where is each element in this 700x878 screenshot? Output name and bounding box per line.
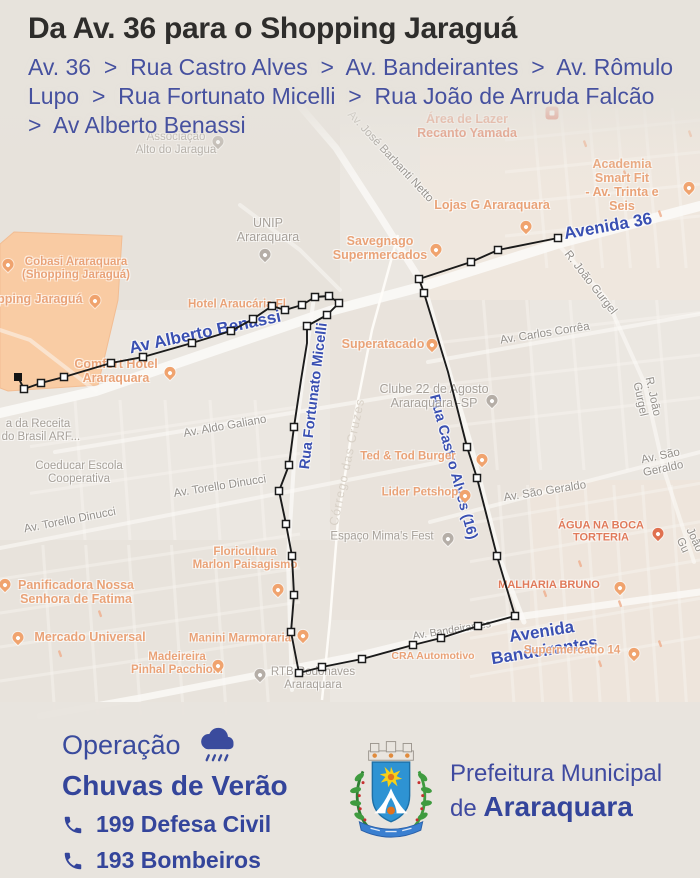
city-line-prefix: de [450, 795, 483, 822]
minor-road [210, 400, 220, 540]
minor-road [0, 636, 300, 681]
road-label: Av. Torello Dinucci [173, 473, 267, 500]
poi-pin [612, 580, 628, 596]
poi-label: Superatacado [342, 337, 425, 351]
poi-pin [626, 646, 642, 662]
route-waypoint [555, 235, 562, 242]
poi-label: Ted & Tod Burger [360, 451, 455, 464]
poi-pin [162, 365, 178, 381]
minor-road [214, 545, 226, 715]
stream-corrego-das-cruzes [322, 235, 398, 700]
minor-road [470, 598, 700, 638]
route-road-label: Rua Castro Alves (16) [426, 393, 480, 541]
route-path [18, 238, 558, 673]
traffic-arrow [658, 640, 663, 647]
route-waypoint [438, 635, 445, 642]
minor-road [30, 453, 300, 493]
traffic-arrow [578, 560, 583, 567]
road [430, 452, 700, 522]
minor-road [86, 545, 98, 715]
minor-road [30, 407, 300, 447]
minor-road [585, 485, 601, 715]
route-waypoint [283, 521, 290, 528]
poi-label: Lojas G Araraquara [434, 198, 550, 212]
poi-label: Hotel Araucária Fl [188, 299, 286, 312]
minor-road [657, 300, 671, 470]
road-label: Av. Torello Dinucci [23, 506, 117, 536]
minor-road [440, 313, 700, 343]
route-waypoint [474, 475, 481, 482]
minor-road [470, 522, 700, 562]
minor-road [171, 545, 183, 715]
route-waypoint [495, 247, 502, 254]
operation-name: Chuvas de Verão [62, 770, 288, 802]
route-waypoint [38, 380, 45, 387]
minor-road [165, 400, 175, 540]
poi-pin [270, 582, 286, 598]
route-waypoint [21, 386, 28, 393]
operation-block: Operação Chuvas de Verão 199 [62, 726, 288, 874]
poi-label: CRA Automotivo [391, 651, 474, 663]
araraquara-coat-of-arms [348, 736, 434, 846]
city-hall-logo: Prefeitura Municipal de Araraquara [348, 736, 662, 846]
poi-label: Shopping Jaraguá [0, 292, 83, 306]
poi-pin [428, 242, 444, 258]
route-waypoint [421, 290, 428, 297]
city-line: de Araraquara [450, 791, 662, 823]
route-waypoint [291, 424, 298, 431]
minor-road [528, 485, 544, 715]
route-waypoint [140, 354, 147, 361]
route-waypoint [282, 307, 289, 314]
route-waypoint [304, 323, 311, 330]
route-waypoint [276, 488, 283, 495]
poi-label: RTB Rodonaves Araraquara [271, 666, 355, 692]
road [55, 390, 430, 452]
route-waypoint [228, 328, 235, 335]
traffic-arrow [543, 200, 548, 207]
minor-road [440, 398, 700, 428]
route-road-label: Avenida 36 [562, 209, 653, 243]
poi-label: Mercado Universal [34, 630, 145, 644]
poi-pin [474, 452, 490, 468]
poi-label: ÁGUA NA BOCA TORTERIA [558, 520, 644, 545]
poi-label: Supermercado 14 [524, 645, 621, 658]
poi-pin [518, 219, 534, 235]
operation-label: Operação [62, 730, 181, 761]
phone-firefighters: 193 Bombeiros [96, 847, 261, 874]
rain-cloud-icon [195, 726, 239, 764]
city-name: Araraquara [483, 791, 632, 822]
traffic-arrow [658, 210, 663, 217]
road-label: Av. Aldo Galiano [183, 413, 268, 440]
route-waypoint [319, 664, 326, 671]
minor-road [255, 400, 265, 540]
minor-road [643, 485, 659, 715]
road-label: Av. São Geraldo [639, 446, 684, 480]
route-road-label: Av Alberto Benassi [127, 307, 282, 358]
minor-road [614, 485, 630, 715]
poi-pin [650, 526, 666, 542]
route-waypoint [288, 629, 295, 636]
route-end-marker [14, 373, 22, 381]
traffic-arrow [618, 600, 623, 607]
minor-road [505, 216, 700, 236]
traffic-arrow [598, 660, 603, 667]
route-waypoint [108, 360, 115, 367]
poi-pin [87, 293, 103, 309]
poi-label: Clube 22 de Agosto Araraquara -SP [379, 382, 488, 410]
poi-label: Espaço Mima's Fest [330, 531, 433, 544]
minor-road [440, 355, 700, 385]
minor-road [120, 400, 130, 540]
route-waypoint [359, 656, 366, 663]
poi-pin [257, 247, 273, 263]
route-waypoint [416, 276, 423, 283]
minor-road [0, 602, 300, 647]
poi-pin [0, 257, 16, 273]
traffic-arrow [58, 650, 63, 657]
shopping-jaragua-area [0, 232, 122, 391]
road [0, 462, 440, 548]
road-label: R. João Gu [671, 521, 700, 560]
route-waypoint [286, 462, 293, 469]
route-waypoint [475, 623, 482, 630]
poi-label: Floricultura Marlon Paisagismo [193, 546, 298, 572]
minor-road [0, 534, 300, 579]
road-label: Av. São Geraldo [503, 479, 587, 505]
road-label: R. João Gurgel [561, 249, 619, 318]
minor-road [671, 485, 687, 715]
route-directions-line: > Av Alberto Benassi [28, 111, 688, 140]
route-waypoint [291, 592, 298, 599]
poi-label: a da Receita l do Brasil ARF... [0, 418, 80, 444]
poi-label: Manini Marmoraria [189, 633, 291, 646]
route-waypoint [324, 312, 331, 319]
poi-label: Cobasi Araraquara (Shopping Jaraguá) [22, 256, 130, 282]
prefeitura-line: Prefeitura Municipal [450, 760, 662, 788]
minor-road [129, 545, 141, 715]
poi-pin [252, 667, 268, 683]
road [240, 205, 340, 290]
poi-label: Córrego das Cruzes [327, 397, 368, 527]
traffic-arrow [98, 610, 103, 617]
map-block [330, 300, 530, 620]
route-waypoint [326, 293, 333, 300]
route-road-label: Rua Fortunato Micelli [297, 322, 331, 470]
minor-road [257, 545, 269, 715]
minor-road [556, 485, 572, 715]
poi-label: Lider Petshop [382, 487, 459, 500]
minor-road [499, 485, 515, 715]
route-waypoint [61, 374, 68, 381]
road [424, 286, 524, 622]
minor-road [470, 637, 700, 677]
route-waypoint [296, 670, 303, 677]
route-waypoint [189, 340, 196, 347]
road-label: R. João Gurgel [628, 369, 664, 427]
minor-road [483, 300, 497, 470]
poi-pin [210, 658, 226, 674]
city-hall-name: Prefeitura Municipal de Araraquara [450, 760, 662, 823]
minor-road [470, 560, 700, 600]
route-directions-line: Lupo > Rua Fortunato Micelli > Rua João … [28, 82, 688, 111]
poi-label: MALHARIA BRUNO [498, 579, 600, 591]
poi-label: Panificadora Nossa Senhora de Fatima [18, 578, 134, 606]
route-infographic: Av. José Barbanti NettoAv. Carlos Corrêa… [0, 0, 700, 878]
road [288, 297, 314, 690]
route-waypoint [269, 303, 276, 310]
road [40, 592, 700, 716]
road-label: Av. Carlos Corrêa [499, 321, 590, 348]
road [428, 314, 700, 362]
road-label: Av. Bandeirantes [412, 619, 492, 643]
poi-label: Madeireira Pinhal Pacchioni [131, 651, 223, 677]
road [0, 206, 700, 413]
traffic-arrow [543, 590, 548, 597]
poi-label: Coeducar Escola Cooperativa [35, 460, 123, 486]
poi-pin [0, 577, 13, 593]
route-waypoint [336, 300, 343, 307]
route-waypoint [512, 613, 519, 620]
phone-icon [62, 814, 84, 836]
route-waypoint [299, 302, 306, 309]
road [556, 242, 694, 562]
minor-road [75, 400, 85, 540]
minor-road [470, 483, 700, 523]
footer: Operação Chuvas de Verão 199 [0, 702, 700, 878]
route-road-label: Avenida Bandeirantes [462, 610, 623, 672]
phone-civil-defense: 199 Defesa Civil [96, 811, 271, 838]
poi-pin [295, 628, 311, 644]
minor-road [0, 568, 300, 613]
minor-road [613, 300, 627, 470]
route-directions-line: Av. 36 > Rua Castro Alves > Av. Bandeira… [28, 53, 688, 82]
map-block [0, 540, 330, 720]
poi-label: UNIP Araraquara [237, 216, 300, 244]
header: Da Av. 36 para o Shopping Jaraguá Av. 36… [28, 12, 688, 140]
route-waypoint [312, 294, 319, 301]
page-title: Da Av. 36 para o Shopping Jaraguá [28, 12, 688, 46]
minor-road [43, 545, 55, 715]
map-block [460, 480, 700, 720]
poi-label: Savegnago Supermercados [333, 234, 427, 262]
route-waypoint [494, 553, 501, 560]
poi-label: Comfort Hotel Araraquara [74, 357, 157, 385]
poi-pin [457, 488, 473, 504]
poi-pin [424, 337, 440, 353]
route-waypoint [250, 316, 257, 323]
route-waypoint [289, 553, 296, 560]
phone-icon [62, 850, 84, 872]
poi-pin [440, 531, 456, 547]
poi-pin [484, 393, 500, 409]
route-waypoint [464, 444, 471, 451]
route-waypoint [410, 642, 417, 649]
poi-pin [10, 630, 26, 646]
minor-road [527, 300, 541, 470]
route-waypoint [468, 259, 475, 266]
crown [369, 742, 414, 761]
road [0, 330, 96, 391]
minor-road [570, 300, 584, 470]
